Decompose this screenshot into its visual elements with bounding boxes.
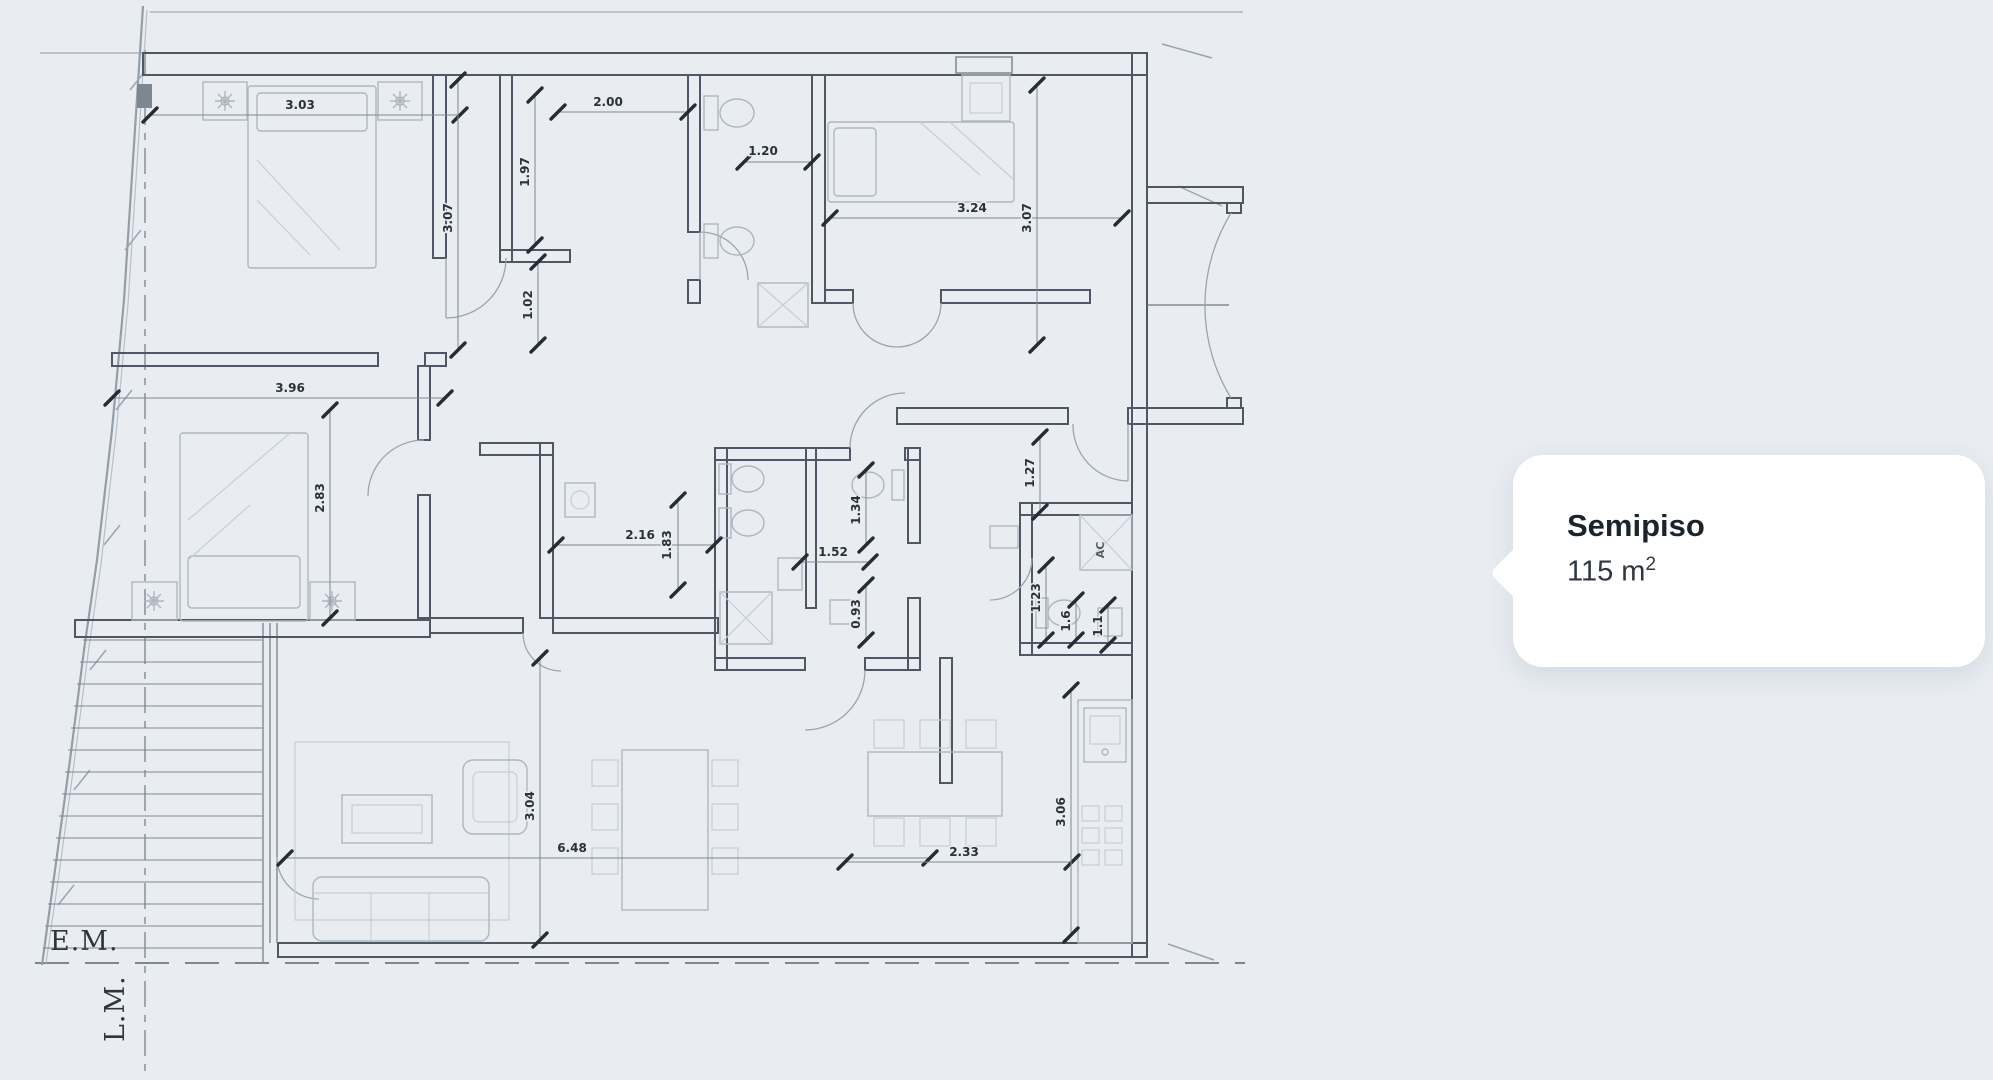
dimension-label: 1.27 xyxy=(1023,458,1037,488)
dimension-label: 2.33 xyxy=(949,845,979,859)
dimension-label: 1.83 xyxy=(660,530,674,560)
dimension-label: 0.93 xyxy=(849,599,863,629)
dimension-label: 3.03 xyxy=(285,98,315,112)
boundary-hatch xyxy=(58,70,146,905)
dimension-label: 1.20 xyxy=(748,144,778,158)
dimension-label: 2.16 xyxy=(625,528,655,542)
dimension-label: 1.97 xyxy=(518,157,532,187)
dimension-label: 2.83 xyxy=(313,483,327,513)
dimension-label: 3.04 xyxy=(523,791,537,821)
dimension-label: 1.52 xyxy=(818,545,848,559)
unit-area: 115 m2 xyxy=(1567,545,1985,592)
dimension-label: 3.24 xyxy=(957,201,987,215)
dimension-label: 6.48 xyxy=(557,841,587,855)
plan-notes: E.M.L.M.AC xyxy=(50,542,1107,1042)
dimension-label: 3.07 xyxy=(441,203,455,233)
boundary-label: E.M. xyxy=(50,926,119,957)
room-note: AC xyxy=(1094,542,1107,559)
lamp-icon xyxy=(390,91,410,111)
dimension-label: 1.34 xyxy=(849,495,863,525)
lamp-icon xyxy=(144,591,164,611)
dimension-label: 1.6 xyxy=(1059,610,1073,631)
stairs xyxy=(43,640,262,948)
page: { "page": { "background": "#e9edf2" }, "… xyxy=(0,0,1993,1080)
doors xyxy=(277,213,1231,899)
dimension-label: 1.02 xyxy=(521,290,535,320)
unit-title: Semipiso xyxy=(1567,507,1985,545)
dimension-label: 1.1 xyxy=(1091,615,1105,636)
stove-burners xyxy=(1082,806,1122,865)
dimension-label: 3.07 xyxy=(1020,203,1034,233)
dimension-label: 1.23 xyxy=(1029,583,1043,613)
dimension-label: 3.96 xyxy=(275,381,305,395)
dimension-label: 3.06 xyxy=(1054,797,1068,827)
lamp-icon xyxy=(215,91,235,111)
unit-info-card[interactable]: Semipiso 115 m2 xyxy=(1513,455,1985,667)
boundary-label: L.M. xyxy=(100,975,131,1042)
dimension-label: 2.00 xyxy=(593,95,623,109)
lamp-icon xyxy=(322,591,342,611)
